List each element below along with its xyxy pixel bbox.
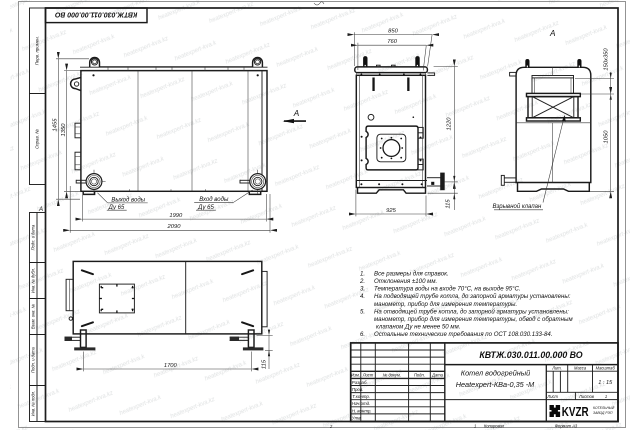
svg-text:Все размеры для справок.: Все размеры для справок. [374, 270, 449, 277]
svg-text:А: А [549, 29, 556, 38]
svg-text:Т.контр.: Т.контр. [352, 394, 370, 399]
svg-text:KVZR: KVZR [562, 404, 589, 419]
svg-text:1350: 1350 [61, 123, 67, 137]
svg-text:Лист: Лист [546, 394, 558, 399]
svg-text:1050: 1050 [604, 130, 610, 144]
svg-text:1 : 15: 1 : 15 [598, 380, 613, 386]
svg-text:115: 115 [445, 199, 451, 209]
svg-text:Инв. № дубл.: Инв. № дубл. [31, 268, 36, 293]
svg-text:На отводящей трубе котла, до з: На отводящей трубе котла, до запорной ар… [374, 308, 569, 315]
svg-text:ЗАВОД РЭП: ЗАВОД РЭП [593, 411, 613, 415]
svg-text:Подп. и дата: Подп. и дата [31, 224, 36, 250]
svg-text:1: 1 [605, 394, 607, 399]
svg-text:Лит.: Лит. [551, 365, 562, 370]
svg-text:Разраб.: Разраб. [352, 380, 368, 385]
svg-text:Ду 65: Ду 65 [197, 205, 214, 211]
svg-text:На подводящей трубе котла, до: На подводящей трубе котла, до запорной а… [374, 293, 571, 300]
svg-text:Остальные технические требован: Остальные технические требования по ОСТ … [374, 331, 552, 338]
svg-text:Листов: Листов [578, 394, 595, 399]
svg-text:Изм.: Изм. [351, 373, 360, 378]
svg-text:1.: 1. [360, 270, 365, 277]
svg-text:КВТЖ.030.011.00.000 ВО: КВТЖ.030.011.00.000 ВО [479, 350, 582, 360]
svg-text:Отклонения ±100 мм.: Отклонения ±100 мм. [374, 278, 437, 285]
svg-text:Нач.отд.: Нач.отд. [352, 401, 371, 406]
svg-text:850: 850 [388, 28, 398, 34]
svg-text:2.: 2. [359, 278, 365, 285]
svg-text:Перв. примен.: Перв. примен. [34, 36, 39, 65]
svg-text:2090: 2090 [167, 224, 182, 230]
svg-text:4.: 4. [360, 293, 365, 300]
svg-text:Выход воды: Выход воды [111, 197, 145, 203]
svg-text:1220: 1220 [447, 117, 453, 131]
svg-text:1455: 1455 [53, 118, 59, 132]
svg-text:Лист: Лист [362, 373, 374, 378]
svg-text:6.: 6. [360, 331, 365, 338]
svg-text:Подп. и дата: Подп. и дата [31, 346, 36, 372]
svg-text:КОТЕЛЬНЫЙ: КОТЕЛЬНЫЙ [593, 406, 615, 410]
svg-text:Подп.: Подп. [414, 373, 425, 378]
svg-text:КВТЖ.030.011.00.000 ВО: КВТЖ.030.011.00.000 ВО [55, 11, 138, 18]
svg-text:манометр, прибор для измерения: манометр, прибор для измерения температу… [374, 301, 517, 308]
svg-text:Взрывной клапан: Взрывной клапан [493, 203, 542, 210]
svg-text:Масштаб: Масштаб [596, 365, 616, 370]
svg-text:1700: 1700 [164, 363, 178, 369]
svg-text:Утв.: Утв. [352, 415, 362, 420]
svg-text:925: 925 [386, 208, 396, 214]
svg-text:№ докум.: № докум. [383, 373, 401, 378]
svg-text:А: А [293, 109, 300, 118]
svg-text:Heatexpert-КВа-0,35 -М: Heatexpert-КВа-0,35 -М [456, 380, 535, 389]
svg-text:Котел водогрейный: Котел водогрейный [461, 369, 530, 378]
svg-text:Взам. инв. №: Взам. инв. № [31, 303, 36, 329]
svg-text:Ду 65: Ду 65 [108, 205, 125, 211]
svg-text:Копировал: Копировал [484, 424, 505, 429]
svg-text:Масса: Масса [574, 365, 587, 370]
svg-text:Инв. № подл.: Инв. № подл. [31, 391, 36, 416]
svg-text:5.: 5. [360, 308, 365, 315]
svg-text:Температура воды на входе 70°С: Температура воды на входе 70°С, на выход… [374, 286, 521, 293]
svg-text:Вход воды: Вход воды [199, 197, 229, 203]
svg-text:760: 760 [387, 39, 397, 45]
svg-text:клапаном Ду не менее 50 мм.: клапаном Ду не менее 50 мм. [376, 324, 460, 331]
svg-text:Пров.: Пров. [352, 387, 364, 392]
svg-text:манометр, прибор для измерения: манометр, прибор для измерения температу… [374, 316, 573, 323]
svg-text:Н. контр.: Н. контр. [352, 408, 372, 413]
svg-text:Справ. №: Справ. № [34, 129, 39, 149]
svg-text:1: 1 [474, 424, 476, 429]
svg-text:115: 115 [261, 359, 267, 369]
svg-text:1990: 1990 [169, 213, 183, 219]
svg-text:3.: 3. [360, 286, 365, 293]
svg-text:Формат А3: Формат А3 [555, 424, 578, 429]
svg-text:150х350: 150х350 [604, 48, 610, 71]
svg-text:Дата: Дата [431, 373, 444, 378]
